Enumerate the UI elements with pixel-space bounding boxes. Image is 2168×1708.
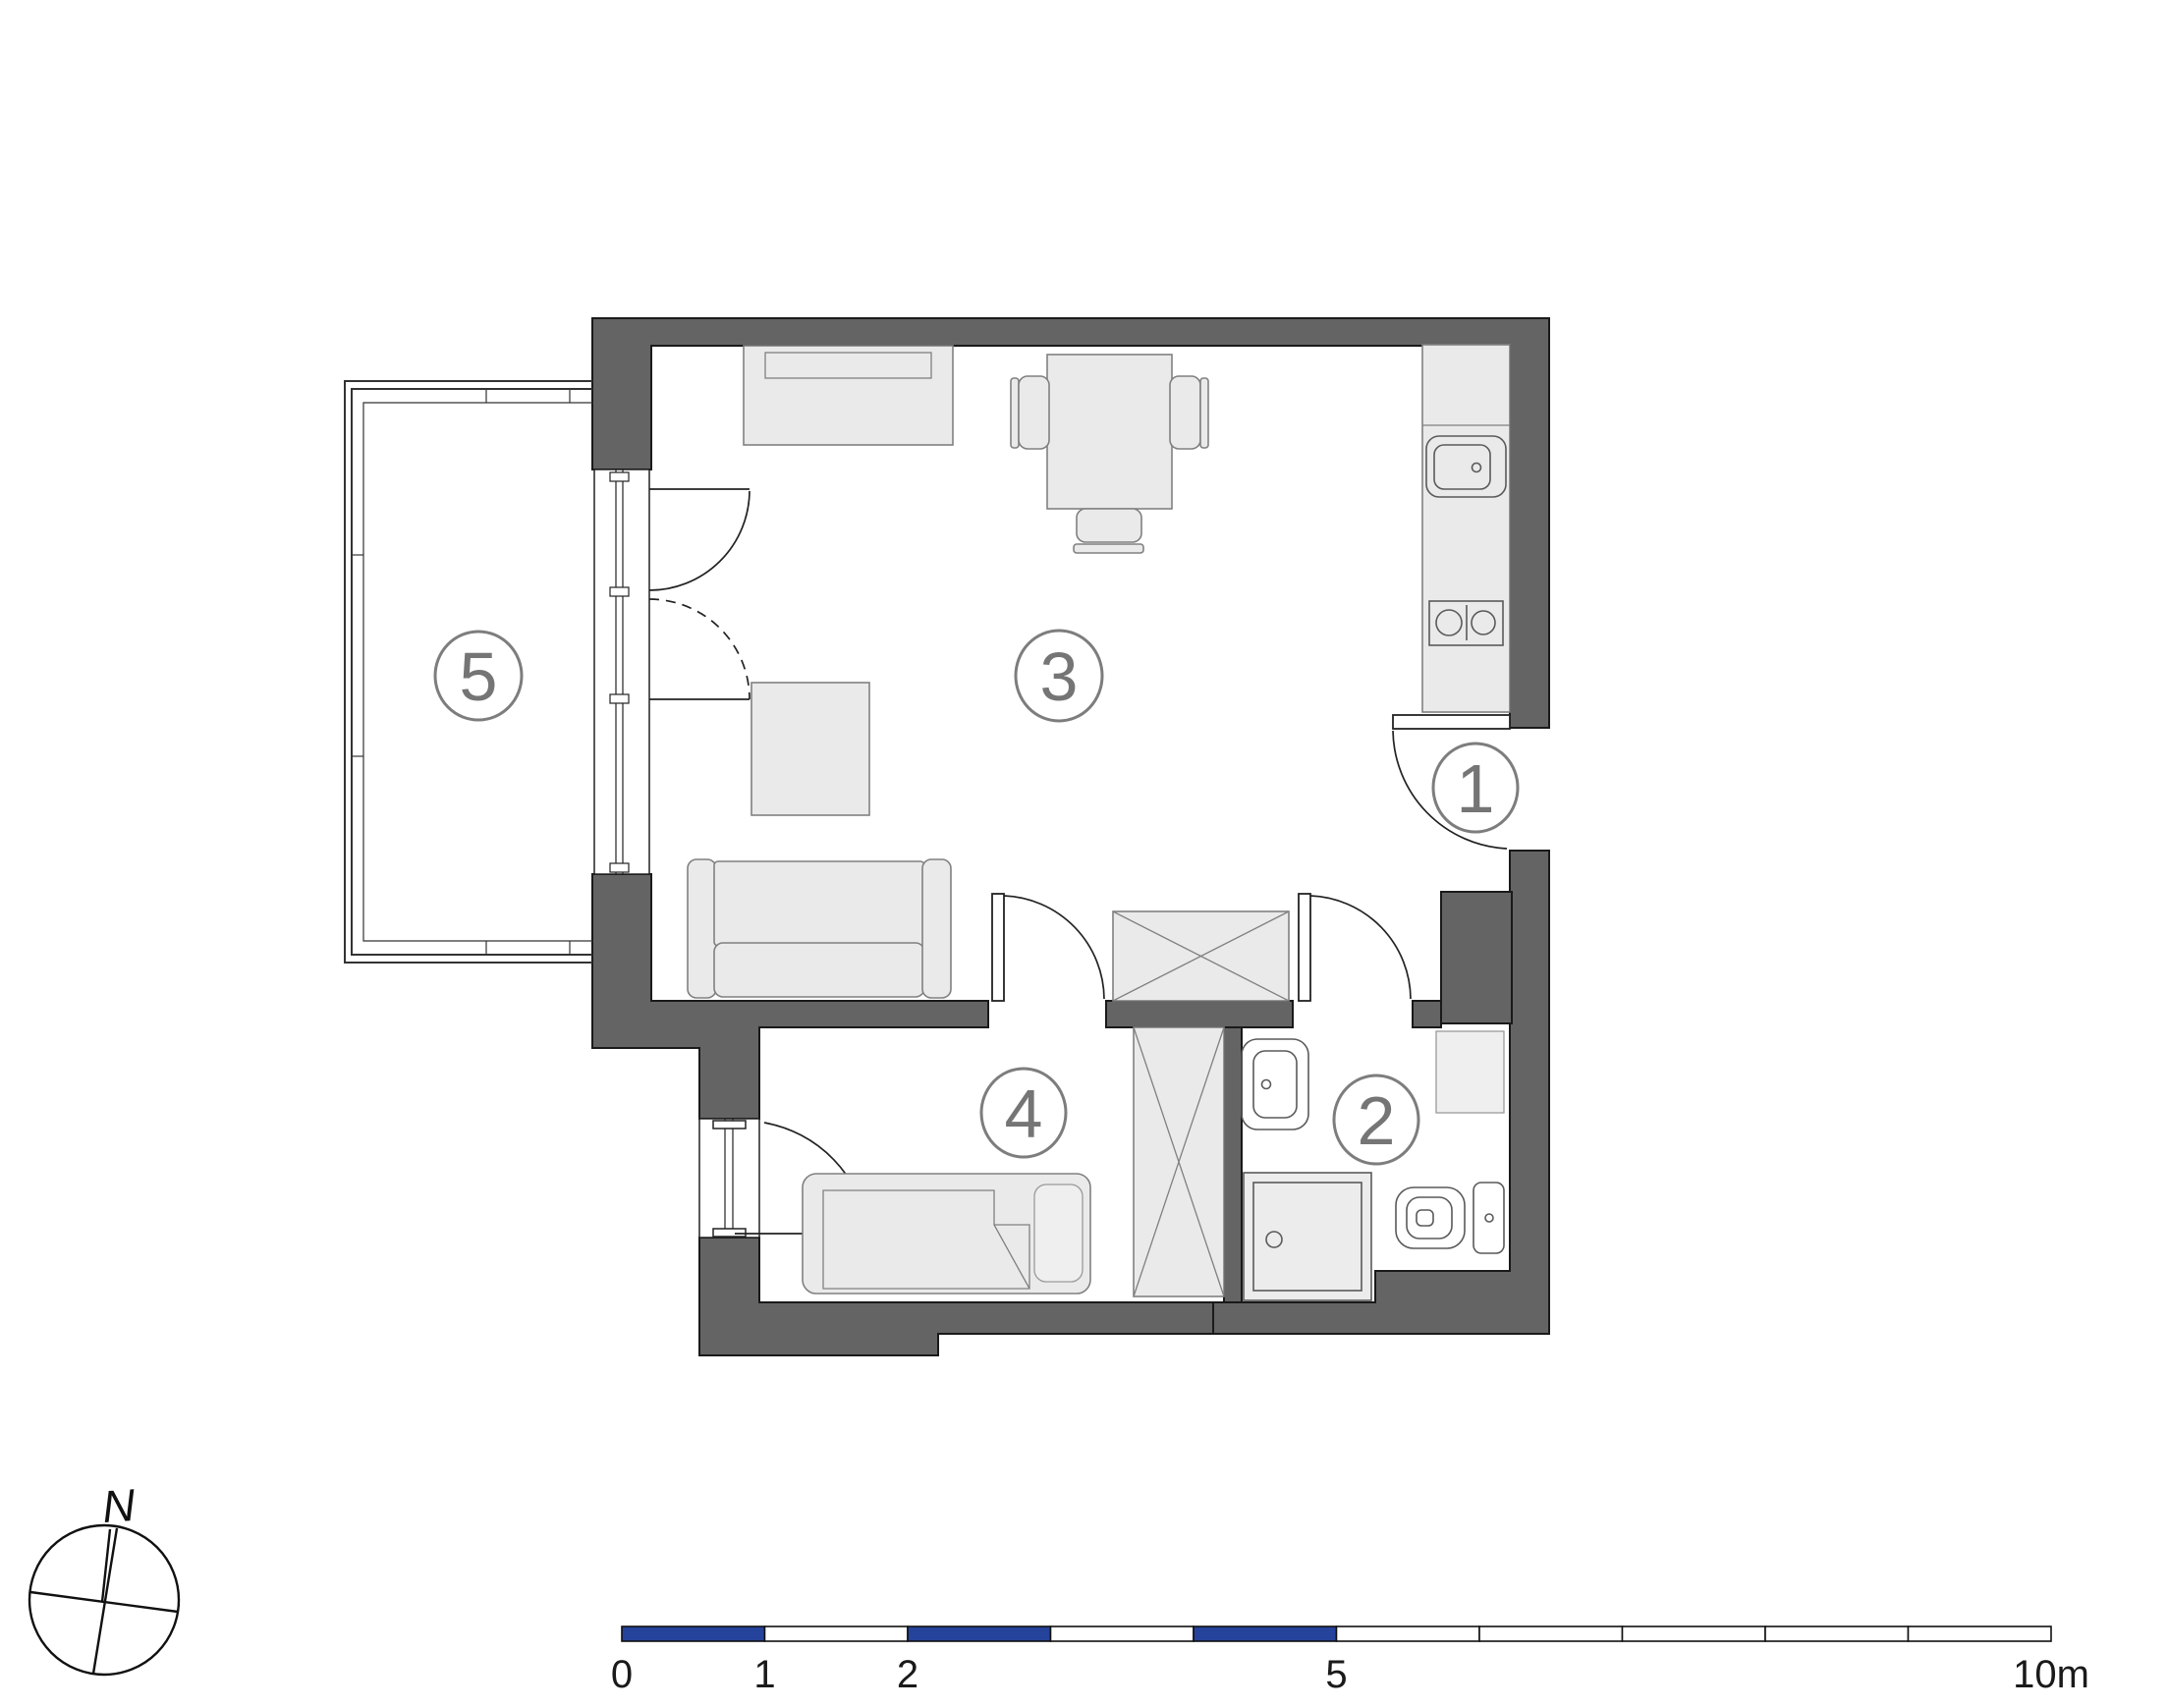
room-label-5: 5 (435, 632, 522, 720)
wardrobe-hall (1113, 911, 1289, 1001)
wardrobe-bedroom (1134, 1027, 1224, 1296)
room-label-4-text: 4 (1005, 1075, 1043, 1152)
toilet-icon (1396, 1183, 1504, 1253)
scale-tick-10m: 10m (2013, 1653, 2089, 1696)
wall-entrance-pillar (1441, 892, 1512, 1023)
dining-chair-right-back (1200, 378, 1208, 448)
balcony-door-frame (594, 469, 649, 874)
wall-bathroom-door-jamb (1413, 1001, 1441, 1027)
wall-hall-segment (1106, 1001, 1293, 1027)
bed (803, 1174, 1090, 1294)
living-room-furniture (688, 346, 1208, 998)
room-label-3: 3 (1016, 631, 1102, 721)
room-label-5-text: 5 (460, 638, 498, 715)
dining-chair-bottom (1077, 509, 1141, 542)
room-label-1-text: 1 (1457, 750, 1495, 827)
room-label-2-text: 2 (1358, 1082, 1396, 1159)
balcony-door-swing-upper (649, 491, 750, 590)
balcony-door-swing-lower (649, 599, 750, 699)
scale-segment-1-2 (765, 1626, 909, 1641)
bathroom-door (1299, 894, 1411, 1001)
room-label-3-text: 3 (1040, 638, 1079, 715)
scale-segment-2-3 (908, 1626, 1051, 1641)
kitchen-counter (1422, 345, 1510, 712)
scale-segment-9-10 (1909, 1626, 2052, 1641)
dining-chair-left (1019, 376, 1049, 449)
scale-segment-3-4 (1051, 1626, 1195, 1641)
washbasin-icon (1242, 1039, 1308, 1129)
sofa-backrest (714, 943, 924, 997)
washing-machine (1436, 1031, 1504, 1113)
scale-bar: 0 1 2 5 10m (611, 1626, 2089, 1696)
wall-bedroom-bathroom-divider (1224, 1023, 1242, 1302)
scale-segment-5-6 (1337, 1626, 1480, 1641)
north-label: N (100, 1479, 138, 1532)
scale-segment-7-8 (1623, 1626, 1766, 1641)
dining-chair-right (1170, 376, 1200, 449)
coffee-table (751, 683, 869, 815)
shower-icon (1244, 1173, 1371, 1300)
sofa (688, 859, 951, 998)
floor-plan-canvas: 1 2 3 4 5 N (0, 0, 2168, 1708)
scale-segment-6-7 (1479, 1626, 1623, 1641)
sofa-armrest-right (922, 859, 951, 998)
bed-pillow (1034, 1185, 1083, 1282)
scale-tick-5: 5 (1325, 1653, 1347, 1696)
dining-chair-bottom-back (1074, 544, 1143, 553)
north-compass-icon: N (29, 1479, 179, 1675)
sofa-armrest-left (688, 859, 716, 998)
room-label-2: 2 (1334, 1075, 1418, 1164)
bathroom (1242, 1031, 1504, 1300)
scale-segment-0-1 (622, 1626, 765, 1641)
sideboard (744, 346, 953, 445)
room-label-4: 4 (981, 1069, 1066, 1157)
bedroom-door (992, 894, 1104, 1001)
scale-segment-8-9 (1765, 1626, 1909, 1641)
dining-chair-left-back (1011, 378, 1019, 448)
scale-tick-2: 2 (897, 1653, 918, 1696)
balcony-door (594, 469, 750, 874)
scale-segment-4-5 (1194, 1626, 1337, 1641)
scale-tick-0: 0 (611, 1653, 633, 1696)
sofa-seat (714, 861, 924, 946)
scale-tick-1: 1 (753, 1653, 775, 1696)
kitchen (1422, 345, 1510, 712)
dining-table (1047, 355, 1172, 509)
room-label-1: 1 (1433, 744, 1518, 832)
